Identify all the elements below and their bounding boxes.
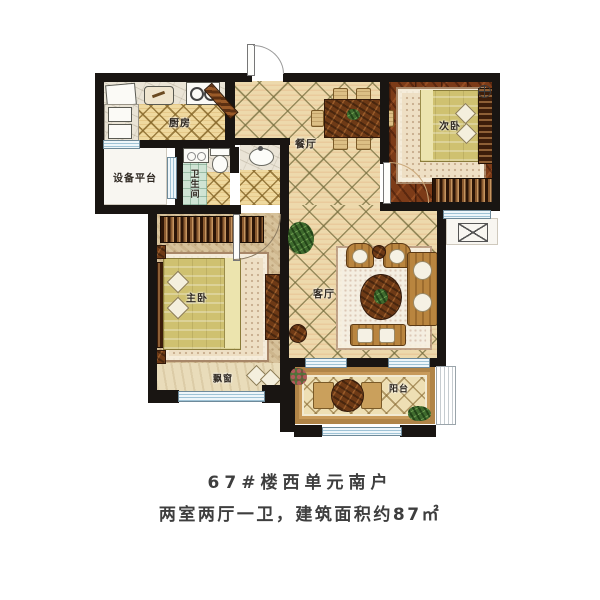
label-second-bedroom: 次卧 (439, 118, 461, 133)
bay-window-glass (178, 391, 265, 402)
wall (230, 147, 239, 173)
shaft-symbol (458, 223, 488, 242)
wall (137, 140, 235, 148)
cutting-board (144, 86, 174, 105)
dining-chair (356, 137, 371, 150)
balcony-rail (436, 366, 456, 425)
sofa (407, 252, 438, 326)
sofa-cushion (413, 261, 432, 280)
dining-chair (333, 137, 348, 150)
label-master-bedroom: 主卧 (186, 290, 208, 305)
palm-plant (288, 222, 314, 254)
wall (400, 425, 436, 437)
toilet-bowl (212, 155, 228, 173)
faucet-icon (187, 152, 196, 161)
label-living-room: 客厅 (313, 286, 335, 301)
label-dining: 餐厅 (295, 136, 317, 151)
wall (95, 205, 241, 214)
coffee-table (360, 274, 402, 320)
flower-pot (290, 368, 307, 385)
window (167, 157, 177, 199)
wall (294, 425, 322, 437)
wall (380, 81, 389, 164)
wall (148, 390, 179, 403)
sink-basin (108, 124, 132, 139)
entry-door-arc (253, 45, 284, 74)
balcony-table (331, 379, 364, 412)
floor-plan-image: 厨房 餐厅 次卧 设备平台 卫生间 主卧 客厅 飘窗 阳台 67#楼西单元南户 … (0, 0, 600, 600)
wall (289, 358, 305, 367)
label-balcony: 阳台 (389, 382, 409, 395)
wall (148, 213, 157, 403)
bath-counter (183, 148, 209, 163)
armchair-cushion (389, 249, 405, 264)
knife-icon (152, 91, 165, 98)
window (388, 358, 430, 368)
wall (280, 138, 289, 367)
label-bay-window: 飘窗 (213, 372, 233, 385)
wall (283, 73, 500, 82)
window (103, 140, 140, 149)
washbasin-faucet-icon (258, 146, 263, 151)
sink-basin (108, 107, 132, 122)
wall (492, 73, 500, 211)
dining-chair (311, 110, 324, 127)
master-bed-sheet (224, 258, 240, 348)
label-equipment-platform: 设备平台 (113, 170, 157, 185)
wall (345, 358, 388, 367)
tv-cabinet (265, 274, 280, 340)
side-table (372, 245, 386, 259)
table-plant (347, 109, 360, 120)
caption-unit-title: 67#楼西单元南户 (0, 468, 600, 493)
armchair (346, 243, 374, 268)
balcony-chair (361, 382, 382, 409)
label-kitchen: 厨房 (169, 115, 191, 130)
label-bathroom: 卫生间 (188, 169, 201, 199)
second-bed-sheet (420, 90, 433, 160)
burner-icon (190, 87, 204, 101)
faucet-icon (197, 152, 206, 161)
bench-cushion (379, 328, 395, 343)
stool (289, 324, 307, 343)
ceiling-fan-icon (478, 85, 491, 98)
coffee-table-plant (374, 289, 388, 304)
wall (437, 205, 446, 367)
hallway-floor (240, 170, 281, 205)
bench-sofa (350, 324, 406, 346)
bathroom-tiles (207, 172, 230, 205)
second-bedroom-wardrobe (432, 178, 494, 204)
caption-layout-area: 两室两厅一卫，建筑面积约87㎡ (0, 500, 600, 525)
window (443, 210, 491, 219)
window (305, 358, 347, 368)
balcony-plant (408, 406, 431, 421)
window (322, 427, 402, 436)
armchair-cushion (352, 249, 368, 264)
bench-cushion (357, 328, 373, 343)
sofa-cushion (413, 293, 432, 312)
